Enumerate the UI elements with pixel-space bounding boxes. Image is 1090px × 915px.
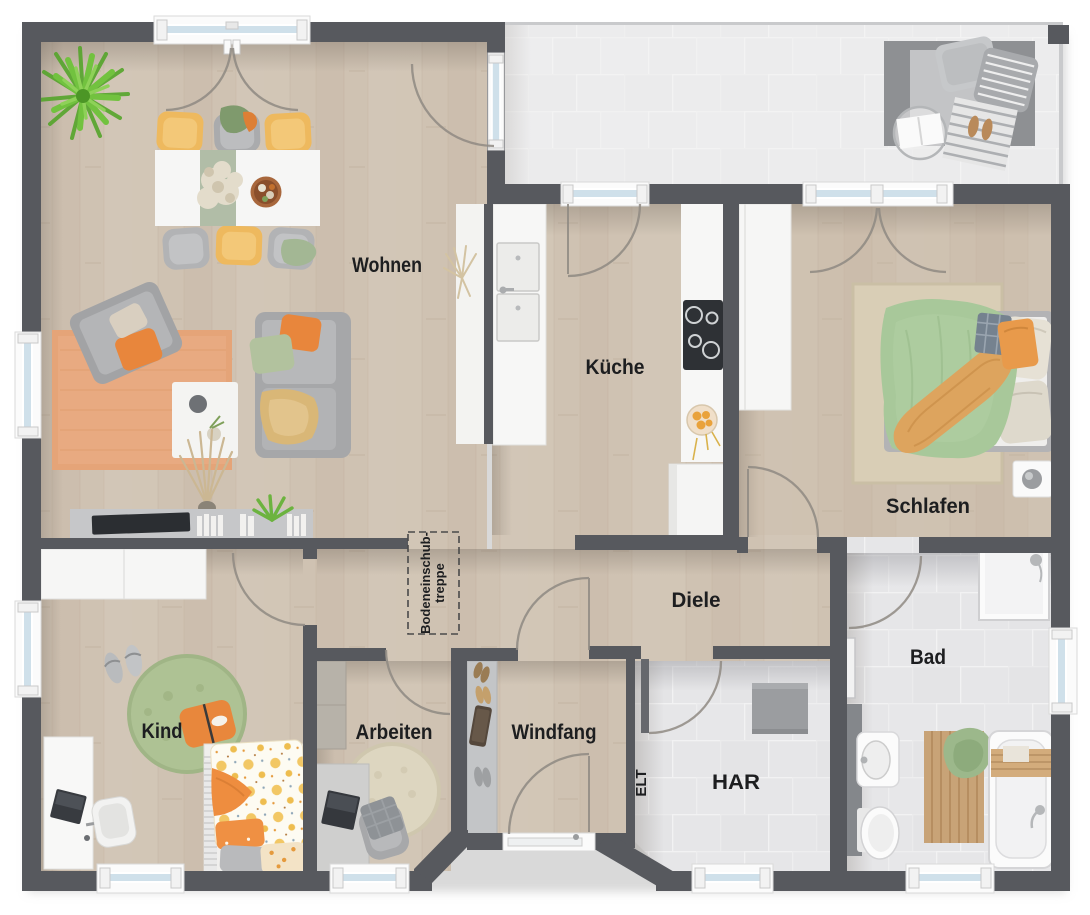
svg-text:Windfang: Windfang (512, 721, 597, 744)
svg-text:HAR: HAR (712, 771, 760, 794)
svg-text:Kind: Kind (142, 720, 183, 743)
svg-text:Bad: Bad (910, 646, 946, 669)
svg-text:ELT: ELT (633, 769, 650, 796)
svg-text:Küche: Küche (586, 356, 645, 379)
svg-text:Schlafen: Schlafen (886, 495, 970, 518)
svg-text:Wohnen: Wohnen (352, 254, 422, 277)
svg-text:Arbeiten: Arbeiten (356, 721, 433, 744)
svg-text:Diele: Diele (672, 589, 721, 612)
